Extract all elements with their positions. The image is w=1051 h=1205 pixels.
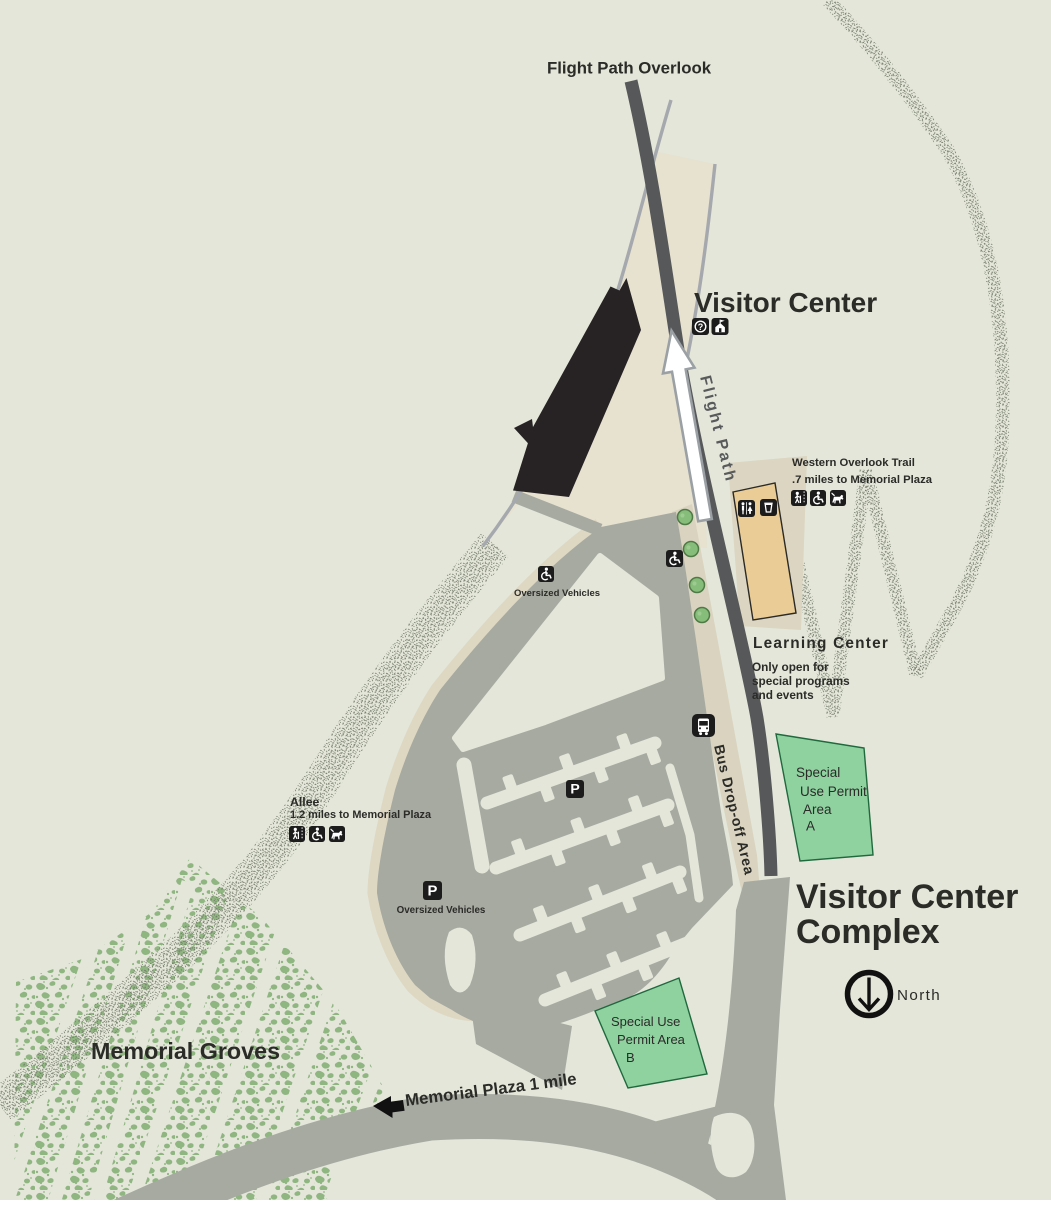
svg-text:P: P	[570, 781, 579, 797]
svg-text:Area: Area	[803, 802, 832, 817]
svg-text:Western Overlook Trail: Western Overlook Trail	[792, 457, 915, 469]
svg-text:special programs: special programs	[752, 674, 850, 688]
svg-text:Memorial Groves: Memorial Groves	[91, 1038, 280, 1064]
svg-text:and events: and events	[752, 688, 814, 702]
svg-text:Flight Path Overlook: Flight Path Overlook	[547, 59, 712, 78]
svg-text:Oversized Vehicles: Oversized Vehicles	[397, 905, 486, 916]
svg-text:Visitor Center: Visitor Center	[694, 287, 877, 318]
svg-text:Use Permit: Use Permit	[800, 784, 867, 799]
svg-text:Permit Area: Permit Area	[617, 1032, 686, 1047]
svg-text:Complex: Complex	[796, 913, 940, 951]
svg-text:?: ?	[698, 322, 704, 332]
svg-text:Oversized Vehicles: Oversized Vehicles	[514, 588, 600, 599]
svg-text:B: B	[626, 1050, 635, 1065]
svg-text:Learning Center: Learning Center	[753, 635, 889, 652]
svg-text:P: P	[428, 883, 438, 899]
svg-text:Only open for: Only open for	[752, 660, 829, 674]
svg-text:A: A	[806, 819, 815, 834]
svg-text:North: North	[897, 987, 941, 1004]
svg-text:1.2 miles to Memorial Plaza: 1.2 miles to Memorial Plaza	[290, 809, 432, 821]
svg-text:.7 miles to Memorial Plaza: .7 miles to Memorial Plaza	[792, 474, 933, 486]
svg-text:Allee: Allee	[290, 795, 320, 809]
svg-text:Special: Special	[796, 765, 840, 780]
svg-text:Visitor Center: Visitor Center	[796, 878, 1018, 916]
svg-text:Special Use: Special Use	[611, 1014, 680, 1029]
